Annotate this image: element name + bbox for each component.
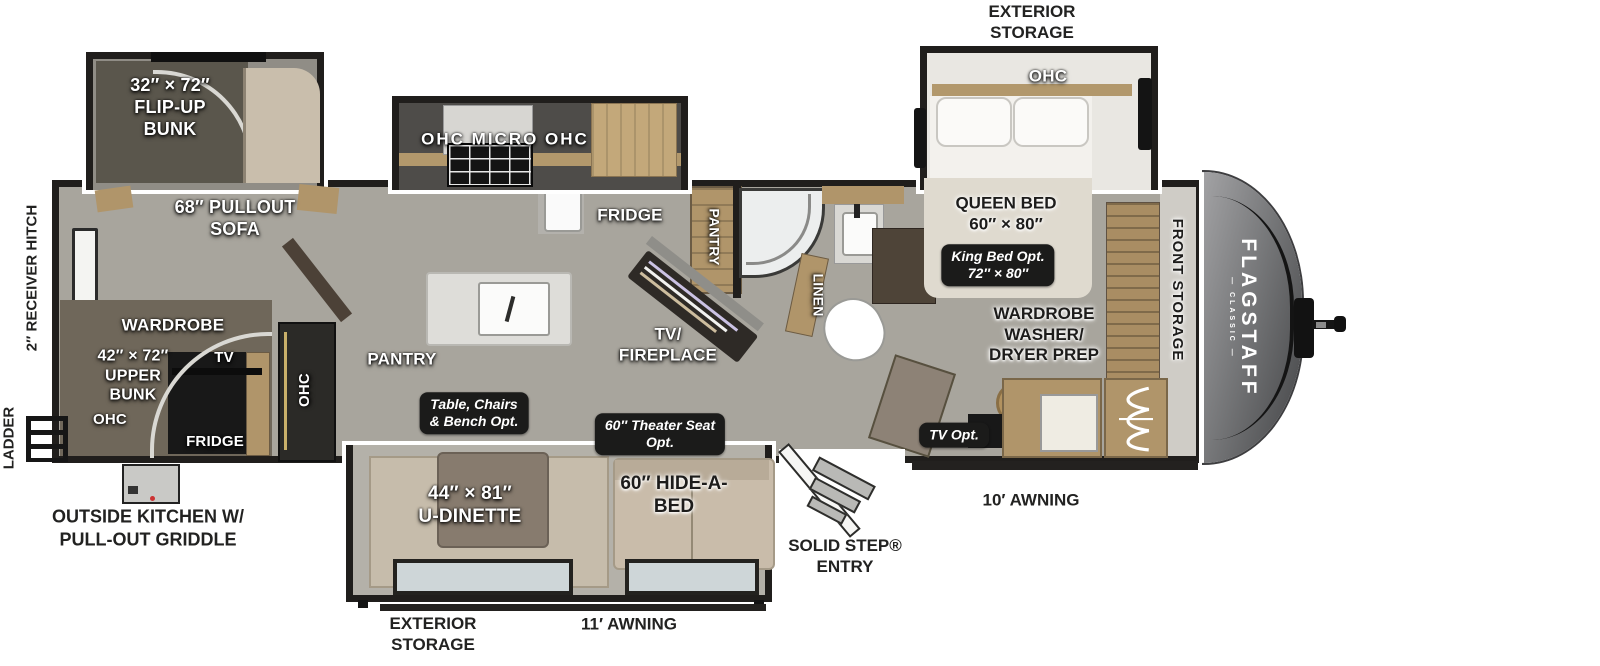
kitchen-sink (544, 190, 582, 232)
bath-ohc-wood (822, 186, 904, 204)
tv-fireplace-label: TV/ FIREPLACE (619, 324, 717, 365)
slide-foot (358, 600, 368, 608)
exterior-storage-front-label: EXTERIOR STORAGE (989, 1, 1076, 44)
wardrobe-label: WARDROBE (122, 316, 225, 337)
linen-label: LINEN (809, 274, 826, 317)
fridge-cabinet (591, 103, 677, 177)
spring-coil-icon (1116, 384, 1156, 452)
ohc-cabinet-trim (284, 332, 287, 450)
ladder-label: LADDER (1, 407, 20, 470)
table-chairs-opt-label: Table, Chairs & Bench Opt. (420, 392, 529, 434)
floorplan-canvas: 2″ RECEIVER HITCH LADDER OUTSIDE KITCHEN… (0, 0, 1600, 666)
outside-kitchen-label: OUTSIDE KITCHEN W/ PULL-OUT GRIDDLE (52, 506, 244, 551)
pullout-sofa-label: 68″ PULLOUT SOFA (175, 197, 296, 241)
hitch-coupler (1294, 298, 1314, 358)
king-bed-opt-label: King Bed Opt. 72″ × 80″ (941, 244, 1054, 286)
hitch-knob (1334, 316, 1346, 332)
sofa-arm-wood (297, 184, 339, 214)
dinette-window (625, 559, 759, 595)
brand-series: — CLASSIC — (1228, 238, 1235, 397)
awning-11-label: 11′ AWNING (581, 613, 677, 634)
pantry-floor-label: PANTRY (367, 350, 436, 371)
awning-rail-10ft (912, 461, 1198, 470)
solid-step-label: SOLID STEP® ENTRY (788, 535, 902, 578)
dinette-window (393, 559, 573, 595)
bedroom-ohc-label: OHC (1029, 67, 1067, 88)
upper-bunk-label: 42″ × 72″ UPPER BUNK (98, 347, 169, 406)
ladder-icon (26, 416, 68, 462)
exterior-storage-rear-label: EXTERIOR STORAGE (390, 613, 477, 656)
brand-logo: FLAGSTAFF — CLASSIC — (1228, 238, 1260, 397)
bedroom-window-right (1138, 78, 1152, 150)
dinette-slideout (346, 445, 772, 602)
theater-seat-opt-label: 60″ Theater Seat Opt. (595, 413, 725, 455)
flip-up-bunk-label: 32″ × 72″ FLIP-UP BUNK (130, 75, 210, 141)
ohc-column-label: OHC (296, 373, 314, 407)
receiver-hitch-label: 2″ RECEIVER HITCH (24, 205, 43, 351)
pantry-cabinet-label: PANTRY (705, 208, 722, 265)
brand-name: FLAGSTAFF (1236, 238, 1260, 397)
island-sink (478, 282, 550, 336)
kitchen-fridge-label: FRIDGE (597, 206, 662, 227)
bunk-window (151, 52, 266, 62)
bath-faucet-icon (854, 204, 860, 218)
front-storage-slats (1106, 202, 1160, 394)
queen-bed-label: QUEEN BED 60″ × 80″ (955, 193, 1056, 234)
wardrobe-washer-label: WARDROBE WASHER/ DRYER PREP (989, 304, 1099, 366)
awning-10-label: 10′ AWNING (983, 489, 1080, 510)
front-storage-label: FRONT STORAGE (1168, 219, 1186, 362)
sofa-chaise (243, 68, 320, 183)
awning-rail-11ft (380, 604, 766, 611)
hitch-latch (1316, 322, 1326, 328)
u-dinette-label: 44″ × 81″ U-DINETTE (418, 482, 521, 528)
ohc-micro-ohc-label: OHC MICRO OHC (421, 130, 589, 151)
bedroom-window-left (914, 108, 926, 168)
griddle-knob (128, 486, 138, 494)
tv-opt-label: TV Opt. (919, 423, 989, 448)
griddle-indicator (150, 496, 155, 501)
pillow (1013, 97, 1089, 147)
pillow (936, 97, 1012, 147)
rear-ohc-label: OHC (93, 411, 127, 429)
rear-fridge-label: FRIDGE (186, 433, 244, 451)
washer-prep-bin (1040, 394, 1098, 452)
rear-tv-label: TV (214, 349, 234, 367)
hide-a-bed-label: 60″ HIDE-A- BED (620, 472, 727, 518)
